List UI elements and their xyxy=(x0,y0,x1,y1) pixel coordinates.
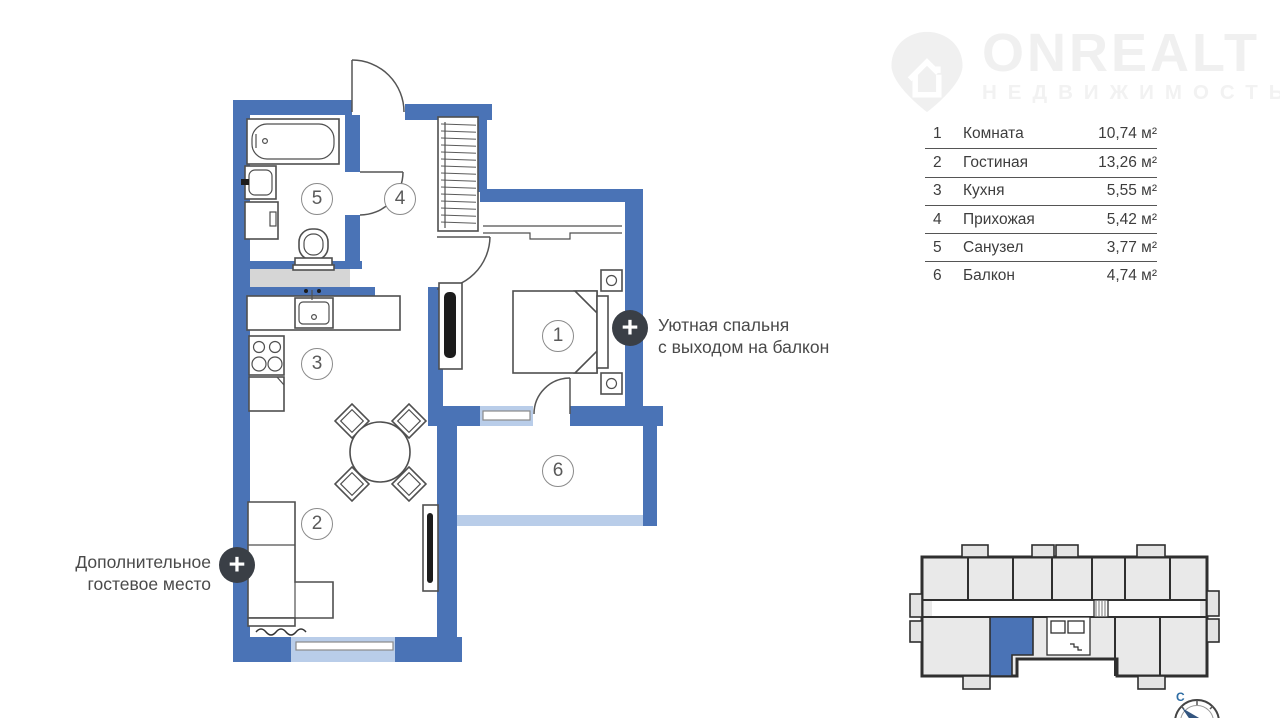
nightstand xyxy=(601,270,622,291)
legend-row: 4 Прихожая 5,42 м² xyxy=(925,205,1157,233)
legend-room-name: Балкон xyxy=(963,267,1107,285)
bedroom-furniture xyxy=(439,226,622,394)
legend-room-area: 5,42 м² xyxy=(1107,211,1157,229)
dining-set xyxy=(335,404,426,501)
bedroom-closet-line xyxy=(483,226,622,239)
bedroom-door xyxy=(437,237,490,289)
room-label-1: 1 xyxy=(542,320,574,352)
room-legend: 1 Комната 10,74 м² 2 Гостиная 13,26 м² 3… xyxy=(925,120,1157,290)
legend-row: 6 Балкон 4,74 м² xyxy=(925,261,1157,289)
toilet xyxy=(293,229,334,270)
legend-room-name: Гостиная xyxy=(963,154,1098,172)
legend-room-area: 5,55 м² xyxy=(1107,182,1157,200)
room-label-4: 4 xyxy=(384,183,416,215)
fridge-cabinet xyxy=(249,377,284,411)
logo-title: ONREALT xyxy=(982,28,1280,78)
dining-table xyxy=(350,422,410,482)
plus-icon: + xyxy=(612,310,648,346)
onrealt-logo: ONREALT НЕДВИЖИМОСТЬ xyxy=(886,28,1280,116)
legend-room-area: 13,26 м² xyxy=(1098,154,1157,172)
washing-machine xyxy=(245,202,278,239)
legend-number: 3 xyxy=(925,182,963,200)
bedroom-wardrobe xyxy=(439,283,462,369)
legend-room-name: Санузел xyxy=(963,239,1107,257)
legend-number: 5 xyxy=(925,239,963,257)
legend-row: 1 Комната 10,74 м² xyxy=(925,120,1157,148)
hall-wardrobe xyxy=(438,117,478,231)
bathtub xyxy=(247,119,339,164)
annotation-guest: Дополнительное гостевое место xyxy=(30,551,211,595)
living-room-furniture xyxy=(248,502,438,635)
annotation-line: гостевое место xyxy=(30,573,211,595)
rug-squiggle xyxy=(256,629,306,635)
entry-door xyxy=(352,60,404,112)
tv-panel xyxy=(423,505,438,591)
plus-icon: + xyxy=(219,547,255,583)
logo-subtitle: НЕДВИЖИМОСТЬ xyxy=(982,81,1280,105)
legend-number: 2 xyxy=(925,154,963,172)
compass-icon: С xyxy=(1175,690,1219,718)
stove xyxy=(249,336,284,375)
living-room-window xyxy=(291,637,395,662)
house-pin-icon xyxy=(886,28,968,116)
legend-room-name: Кухня xyxy=(963,182,1107,200)
room-label-2: 2 xyxy=(301,508,333,540)
legend-room-area: 3,77 м² xyxy=(1107,239,1157,257)
balcony-rail-window xyxy=(457,515,643,526)
floorplan-page: С 1 2 3 4 5 6 + Уютная спальня с выходом… xyxy=(0,0,1280,718)
balcony-door xyxy=(534,378,570,414)
legend-row: 5 Санузел 3,77 м² xyxy=(925,233,1157,261)
highlighted-unit xyxy=(990,617,1033,676)
legend-room-area: 10,74 м² xyxy=(1098,125,1157,143)
annotation-line: Дополнительное xyxy=(30,551,211,573)
annotation-bedroom: Уютная спальня с выходом на балкон xyxy=(658,314,888,358)
room-label-5: 5 xyxy=(301,183,333,215)
legend-number: 1 xyxy=(925,125,963,143)
annotation-line: Уютная спальня xyxy=(658,314,888,336)
legend-room-name: Прихожая xyxy=(963,211,1107,229)
legend-room-name: Комната xyxy=(963,125,1098,143)
windows xyxy=(291,406,643,662)
legend-number: 6 xyxy=(925,267,963,285)
legend-number: 4 xyxy=(925,211,963,229)
building-minimap: С xyxy=(910,545,1219,718)
room-label-6: 6 xyxy=(542,455,574,487)
bedroom-balcony-window xyxy=(480,406,533,426)
legend-row: 3 Кухня 5,55 м² xyxy=(925,177,1157,205)
nightstand xyxy=(601,373,622,394)
legend-room-area: 4,74 м² xyxy=(1107,267,1157,285)
room-label-3: 3 xyxy=(301,348,333,380)
vent-shaft xyxy=(250,269,350,287)
annotation-line: с выходом на балкон xyxy=(658,336,888,358)
compass-north-label: С xyxy=(1176,690,1185,704)
legend-row: 2 Гостиная 13,26 м² xyxy=(925,148,1157,176)
bathroom-sink xyxy=(241,166,276,199)
